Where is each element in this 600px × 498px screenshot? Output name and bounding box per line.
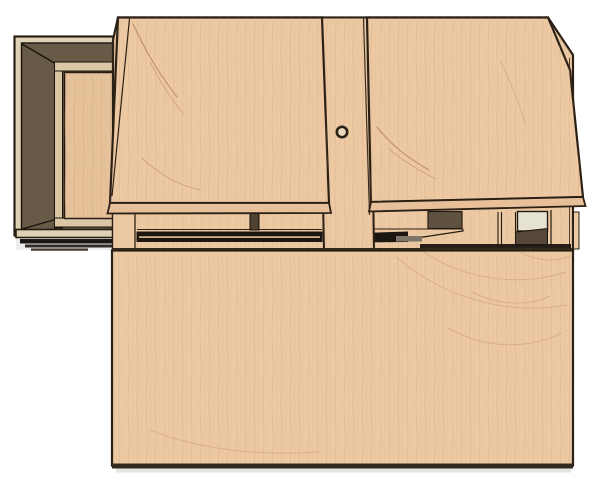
rail-left-member xyxy=(113,211,136,250)
rail-band-highlight xyxy=(139,236,320,238)
rail-grey-bar xyxy=(396,236,422,242)
front-panel xyxy=(112,251,573,473)
rail-slot xyxy=(250,213,259,231)
left-lid xyxy=(108,18,332,214)
inset-panel-grain xyxy=(65,73,114,219)
inner-edge-strip-top xyxy=(55,62,114,71)
rail-recess xyxy=(428,212,462,229)
rail-dark-block xyxy=(516,229,548,246)
rail-right-sliver xyxy=(574,212,580,249)
inner-edge-strip-bottom xyxy=(55,218,114,227)
compartment-bottom-rim xyxy=(16,230,113,238)
left-compartment xyxy=(15,37,119,251)
right-lid xyxy=(367,18,586,212)
front-panel-shadow xyxy=(116,469,571,473)
center-divider xyxy=(320,18,375,251)
finger-hole xyxy=(337,127,347,137)
rail-pale-square xyxy=(518,212,548,232)
render-stage xyxy=(0,0,600,498)
front-panel-bottom-edge xyxy=(112,464,573,469)
left-lid-bottom-edge xyxy=(108,203,332,214)
inner-edge-strip-vertical xyxy=(55,62,63,228)
render-canvas xyxy=(0,0,600,498)
